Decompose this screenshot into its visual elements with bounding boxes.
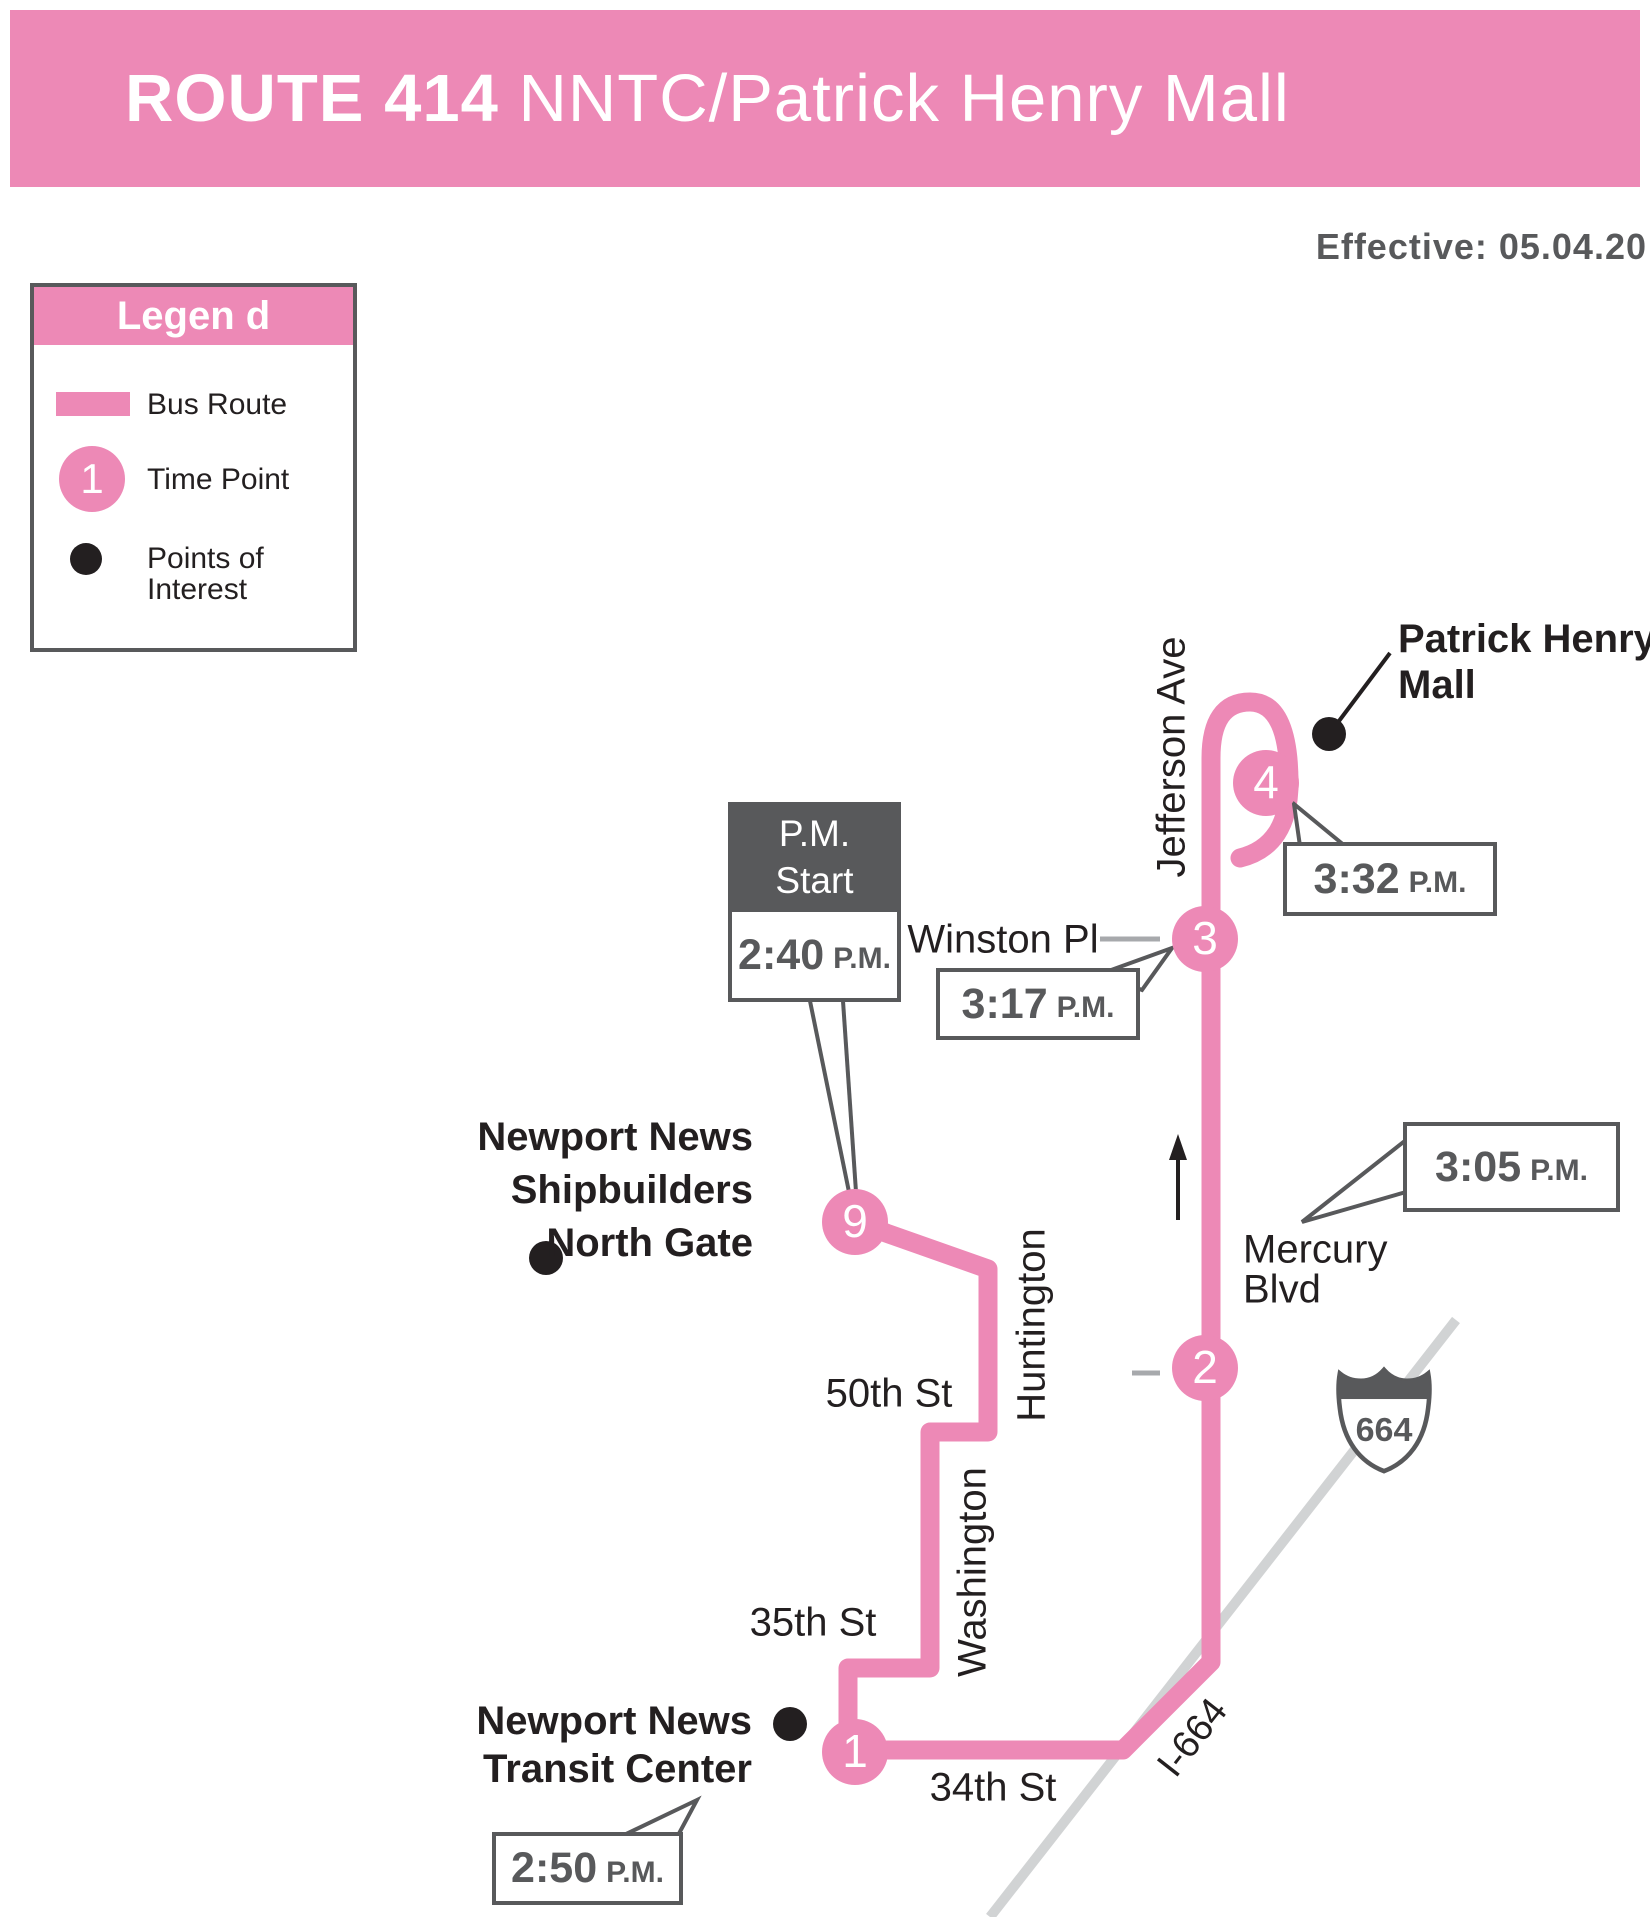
street-label-huntington: Huntington — [1010, 1228, 1055, 1421]
poi-patrick-line2: Mall — [1398, 662, 1650, 708]
time-value-332: 3:32 — [1314, 855, 1400, 904]
street-label-winston-pl: Winston Pl — [907, 918, 1098, 963]
time-suffix-317: P.M. — [1057, 983, 1115, 1025]
street-label-35th-st: 35th St — [750, 1601, 877, 1646]
poi-transit-line2: Transit Center — [476, 1745, 752, 1793]
time-suffix-332: P.M. — [1409, 858, 1467, 900]
legend-label-poi-line2: Interest — [147, 574, 264, 605]
time-callout-332: 3:32 P.M. — [1283, 842, 1497, 916]
time-value-317: 3:17 — [962, 980, 1048, 1029]
pm-start-line2: Start — [728, 857, 901, 904]
time-suffix-305: P.M. — [1530, 1146, 1588, 1188]
poi-ship-line3: North Gate — [477, 1217, 753, 1270]
legend-label-time-point: Time Point — [147, 464, 289, 495]
legend-label-poi: Points of Interest — [147, 543, 264, 605]
time-callout-317: 3:17 P.M. — [936, 968, 1140, 1040]
poi-patrick-line1: Patrick Henry — [1398, 616, 1650, 662]
time-point-2: 2 — [1172, 1335, 1238, 1401]
street-label-50th-st: 50th St — [826, 1372, 953, 1417]
time-value-240: 2:40 — [738, 931, 824, 980]
street-label-washington: Washington — [951, 1467, 996, 1677]
time-value-250: 2:50 — [511, 1844, 597, 1893]
patrick-henry-pointer-line — [1333, 653, 1390, 729]
direction-arrow-head-icon — [1169, 1134, 1187, 1160]
pm-start-box: P.M. Start — [728, 802, 901, 908]
street-label-34th-st: 34th St — [930, 1766, 1057, 1811]
legend-box: Legen d Bus Route 1 Time Point Points of… — [30, 283, 357, 652]
street-label-jefferson-ave: Jefferson Ave — [1150, 637, 1195, 878]
bus-route-line-east — [855, 702, 1289, 1750]
poi-ship-line1: Newport News — [477, 1111, 753, 1164]
poi-transit-line1: Newport News — [476, 1697, 752, 1745]
callout-tail-305 — [1302, 1140, 1406, 1222]
time-point-icon: 1 — [59, 446, 125, 512]
poi-ship-line2: Shipbuilders — [477, 1164, 753, 1217]
street-label-mercury-blvd: Blvd — [1243, 1268, 1321, 1313]
poi-dot-patrick-henry-mall — [1312, 717, 1346, 751]
poi-label-transit-center: Newport News Transit Center — [476, 1697, 752, 1793]
time-point-1: 1 — [822, 1719, 888, 1785]
time-suffix-250: P.M. — [606, 1848, 664, 1890]
time-callout-240: 2:40 P.M. — [728, 908, 901, 1002]
time-callout-305: 3:05 P.M. — [1403, 1122, 1620, 1212]
pm-start-line1: P.M. — [728, 810, 901, 857]
poi-label-shipbuilders-north-gate: Newport News Shipbuilders North Gate — [477, 1111, 753, 1270]
time-callout-250: 2:50 P.M. — [492, 1832, 683, 1905]
legend-label-poi-line1: Points of — [147, 543, 264, 574]
bus-route-swatch-icon — [56, 392, 130, 416]
street-label-mercury: Mercury — [1243, 1228, 1387, 1273]
time-point-4: 4 — [1233, 750, 1299, 816]
time-point-3: 3 — [1172, 906, 1238, 972]
time-suffix-240: P.M. — [833, 934, 891, 976]
callout-tail-332 — [1294, 804, 1345, 846]
time-value-305: 3:05 — [1435, 1143, 1521, 1192]
poi-dot-transit-center — [773, 1707, 807, 1741]
time-point-9: 9 — [822, 1189, 888, 1255]
shield-number: 664 — [1356, 1411, 1413, 1449]
route-map-page: ROUTE 414 NNTC/Patrick Henry Mall Effect… — [0, 0, 1650, 1917]
poi-label-patrick-henry-mall: Patrick Henry Mall — [1398, 616, 1650, 708]
points-of-interest-icon — [70, 543, 102, 575]
legend-label-bus-route: Bus Route — [147, 389, 287, 420]
legend-title: Legen d — [34, 287, 353, 345]
